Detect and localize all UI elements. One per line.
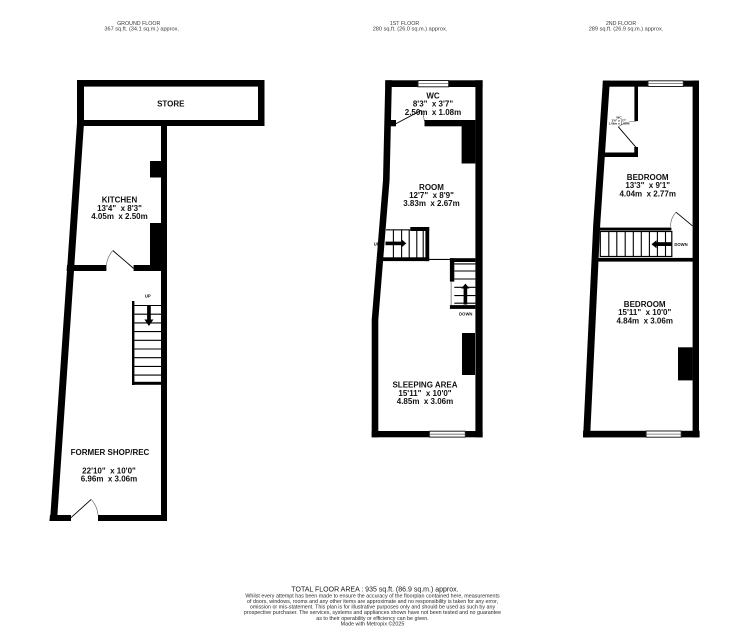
svg-text:UP: UP: [374, 242, 380, 247]
svg-text:289 sq.ft. (26.9 sq.m.) approx: 289 sq.ft. (26.9 sq.m.) approx.: [589, 26, 664, 32]
svg-text:TOTAL FLOOR AREA : 935 sq.ft.: TOTAL FLOOR AREA : 935 sq.ft. (86.9 sq.m…: [291, 586, 458, 593]
svg-text:4.05m x 2.50m: 4.05m x 2.50m: [91, 212, 147, 221]
svg-text:367 sq.ft. (34.1 sq.m.) approx: 367 sq.ft. (34.1 sq.m.) approx.: [104, 26, 179, 32]
svg-text:Made with Metropix ©2025: Made with Metropix ©2025: [341, 620, 405, 627]
svg-text:4.84m x 3.06m: 4.84m x 3.06m: [616, 316, 672, 325]
svg-text:1.06m x 1.08m: 1.06m x 1.08m: [609, 122, 630, 126]
svg-text:DOWN: DOWN: [674, 242, 687, 247]
svg-text:2.50m x 1.08m: 2.50m x 1.08m: [405, 108, 461, 117]
svg-text:6.96m x 3.06m: 6.96m x 3.06m: [81, 475, 137, 484]
svg-text:3.83m x 2.67m: 3.83m x 2.67m: [403, 199, 459, 208]
svg-text:280 sq.ft. (26.0 sq.m.) approx: 280 sq.ft. (26.0 sq.m.) approx.: [373, 26, 448, 32]
svg-text:FORMER SHOP/REC: FORMER SHOP/REC: [71, 448, 150, 457]
svg-text:4.85m x 3.06m: 4.85m x 3.06m: [397, 397, 453, 406]
svg-text:STORE: STORE: [157, 100, 185, 109]
svg-text:DOWN: DOWN: [459, 312, 472, 317]
svg-text:4.04m x 2.77m: 4.04m x 2.77m: [619, 189, 675, 198]
svg-text:UP: UP: [145, 294, 151, 299]
